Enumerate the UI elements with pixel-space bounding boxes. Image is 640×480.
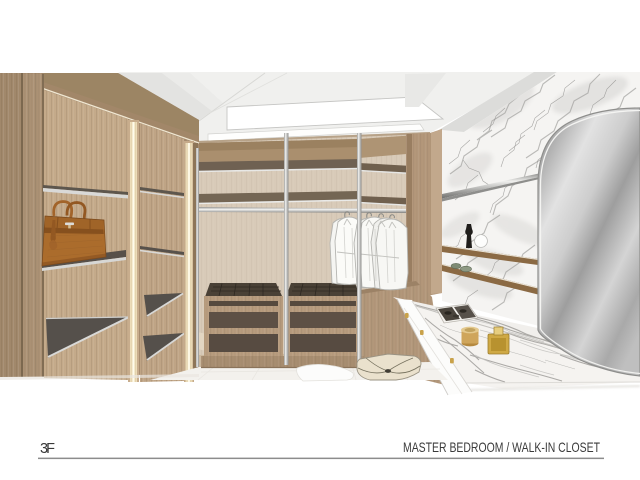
svg-text:3F: 3F (40, 441, 55, 457)
svg-text:MASTER BEDROOM / WALK-IN CLOSE: MASTER BEDROOM / WALK-IN CLOSET (403, 440, 600, 455)
